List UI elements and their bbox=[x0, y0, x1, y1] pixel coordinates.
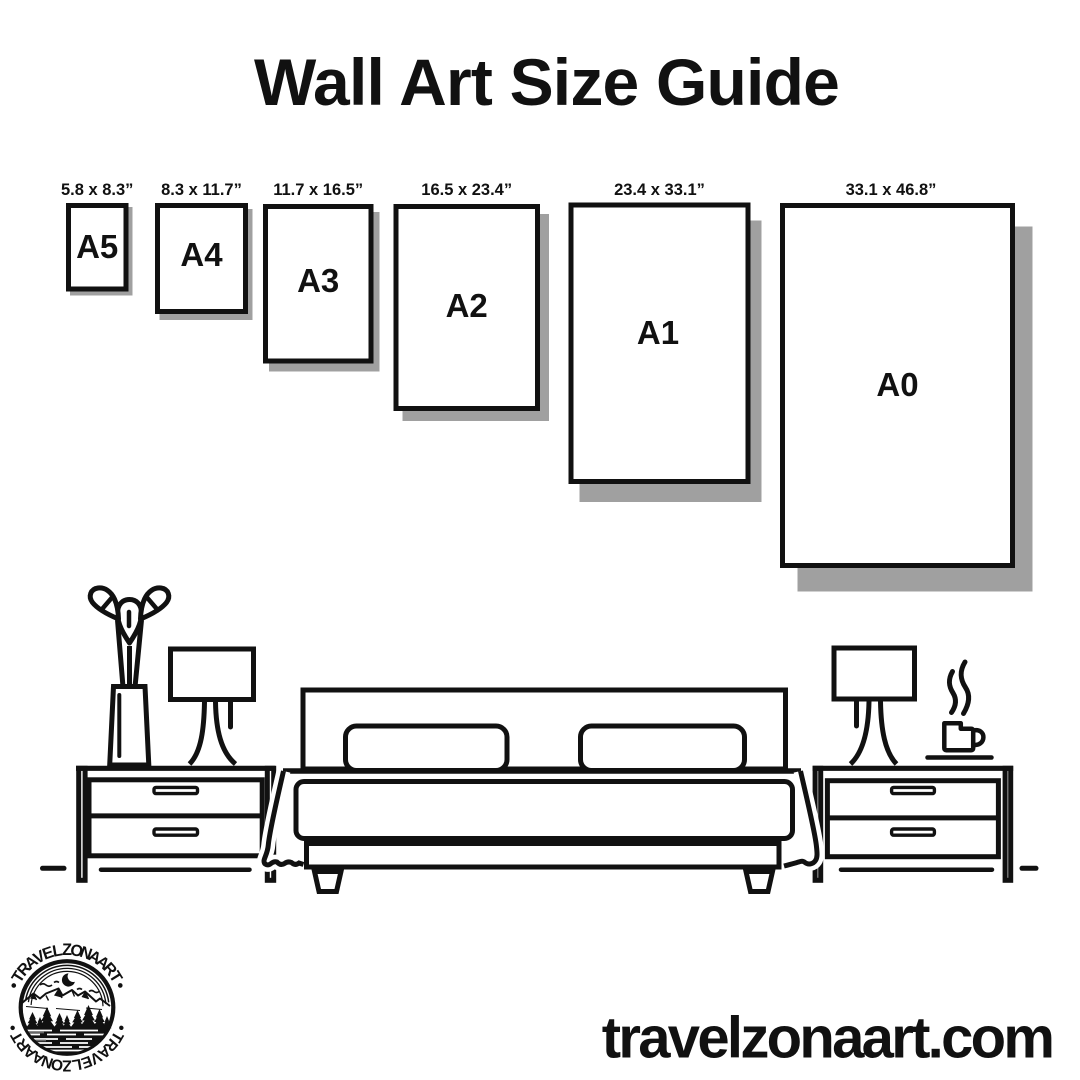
svg-text:11.7 x 16.5”: 11.7 x 16.5” bbox=[273, 181, 363, 199]
svg-text:5.8 x 8.3”: 5.8 x 8.3” bbox=[61, 181, 133, 199]
svg-text:8.3 x 11.7”: 8.3 x 11.7” bbox=[161, 181, 242, 199]
svg-text:33.1 x 46.8”: 33.1 x 46.8” bbox=[846, 181, 937, 199]
svg-text:Wall Art Size Guide: Wall Art Size Guide bbox=[254, 45, 839, 119]
svg-text:16.5 x 23.4”: 16.5 x 23.4” bbox=[421, 181, 512, 199]
svg-text:23.4 x 33.1”: 23.4 x 33.1” bbox=[614, 181, 705, 199]
svg-text:travelzonaart.com: travelzonaart.com bbox=[602, 1006, 1053, 1071]
svg-text:A2: A2 bbox=[446, 287, 488, 324]
svg-text:A0: A0 bbox=[876, 366, 918, 403]
svg-text:A3: A3 bbox=[297, 262, 339, 299]
svg-text:A5: A5 bbox=[76, 228, 118, 265]
svg-text:A1: A1 bbox=[637, 314, 679, 351]
svg-text:A4: A4 bbox=[180, 236, 223, 273]
